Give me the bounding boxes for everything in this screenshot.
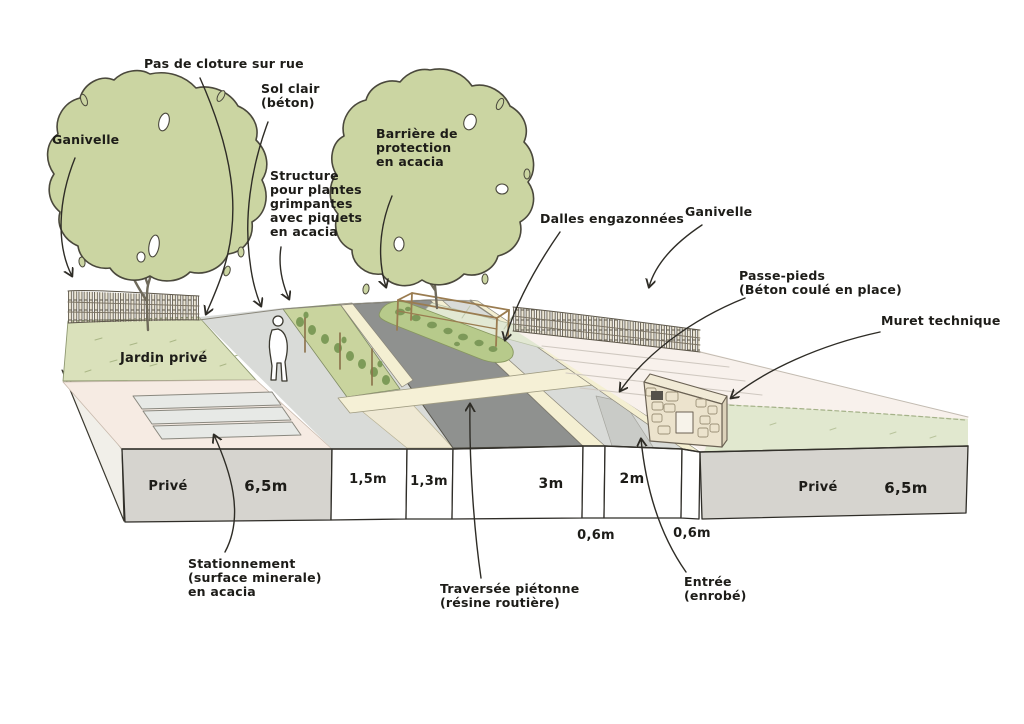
label-barriere: Barrière de protection en acacia (376, 127, 458, 169)
label-stationnement: Stationnement (surface minerale) en acac… (188, 557, 322, 599)
measure-right-private: Privé (798, 480, 837, 495)
label-ganivelle-right: Ganivelle (685, 205, 752, 219)
label-sol-clair: Sol clair (béton) (261, 82, 320, 110)
label-muret: Muret technique (881, 314, 1001, 328)
measure-planting: 1,3m (410, 474, 448, 489)
label-entree: Entrée (enrobé) (684, 575, 747, 603)
diagram-canvas: Ganivelle Pas de cloture sur rue Sol cla… (0, 0, 1024, 724)
measure-footpath: 1,5m (349, 472, 387, 487)
front-face-edge-right (681, 449, 700, 519)
label-traversee: Traversée piétonne (résine routière) (440, 582, 579, 610)
muret-niche (676, 412, 693, 433)
parking-slabs (133, 392, 301, 439)
label-pas-de-cloture: Pas de cloture sur rue (144, 57, 304, 71)
measure-edge-left: 0,6m (577, 528, 615, 543)
measure-road: 3m (539, 476, 564, 492)
measure-left-width: 6,5m (244, 477, 287, 495)
measure-edge-right: 0,6m (673, 526, 711, 541)
label-dalles: Dalles engazonnées (540, 212, 684, 226)
label-passe-pieds: Passe-pieds (Béton coulé en place) (739, 269, 902, 297)
ganivelle-fence-left (68, 290, 199, 323)
label-jardin-prive: Jardin privé (120, 352, 207, 366)
measure-left-private: Privé (148, 479, 187, 494)
muret-plaque (651, 391, 663, 400)
arrow-ganivelle-right (649, 225, 702, 287)
label-structure-plantes: Structure pour plantes grimpantes avec p… (270, 169, 362, 239)
arrow-structure (280, 247, 289, 299)
front-face-edge-left (582, 446, 605, 518)
measure-passe-pieds: 2m (620, 471, 645, 487)
measure-right-width: 6,5m (884, 479, 927, 497)
label-ganivelle-left: Ganivelle (52, 133, 119, 147)
